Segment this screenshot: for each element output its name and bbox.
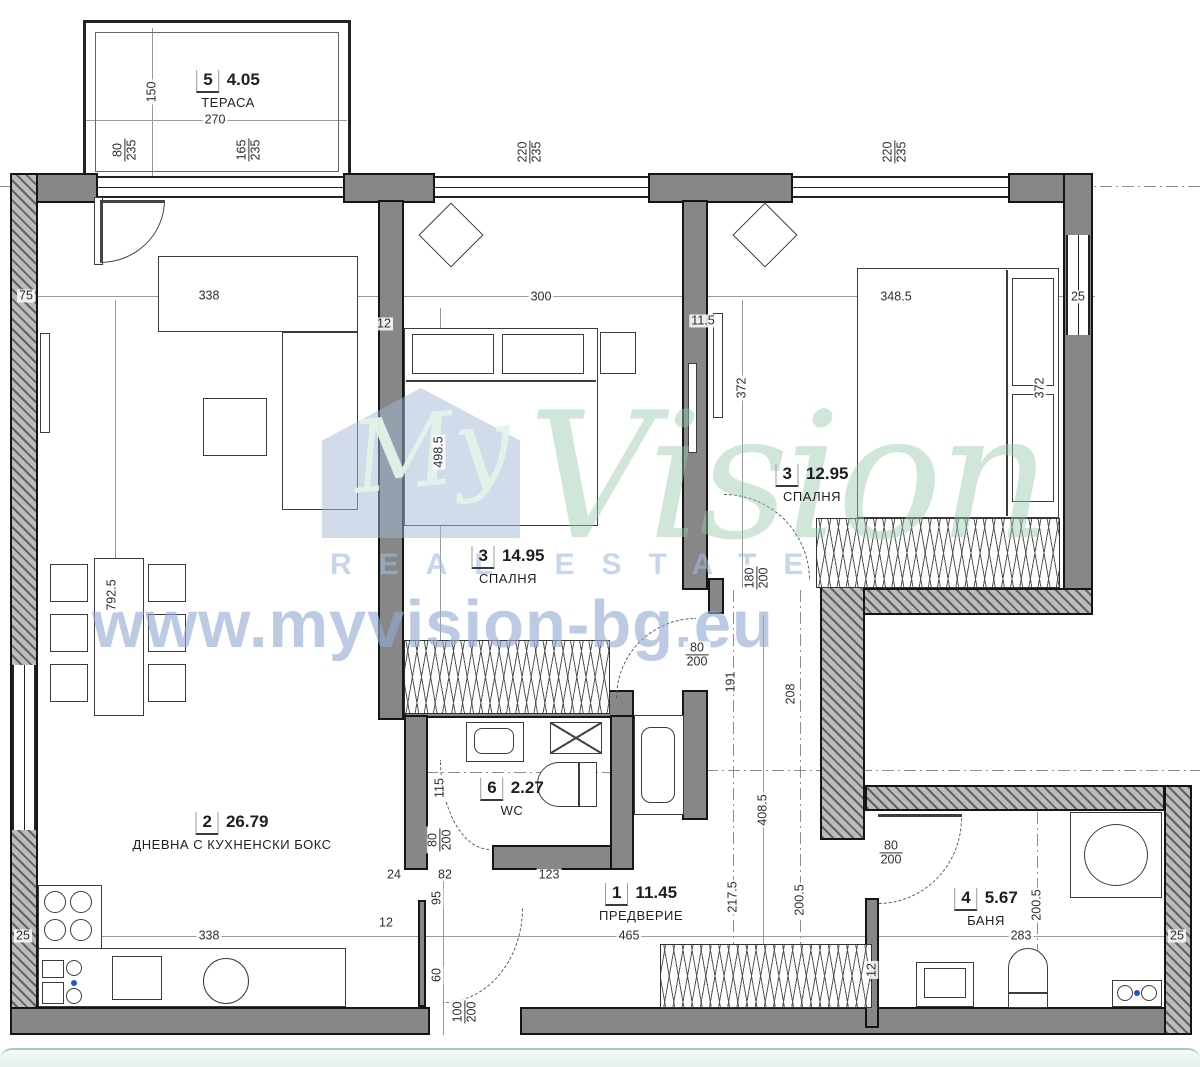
dim-label: 792.5	[105, 577, 118, 612]
kitchen-counter	[38, 948, 346, 1007]
wall-stub-entrance	[418, 900, 426, 1007]
kitchen-cabinet	[42, 960, 64, 978]
dim-label: 165235	[235, 137, 262, 164]
wardrobe	[404, 640, 610, 714]
dim-label: 217.5	[726, 879, 739, 914]
shaft-duct	[641, 727, 675, 803]
window-bed2-right	[1066, 235, 1090, 335]
wall-bottom	[10, 1007, 430, 1035]
dim-label: 372	[735, 376, 748, 401]
dim-label: 24	[385, 868, 403, 881]
chair	[50, 614, 88, 652]
chair	[148, 664, 186, 702]
dim-label: 270	[203, 113, 228, 126]
radiator	[688, 363, 697, 453]
toilet-line	[578, 763, 580, 806]
room-name: WC	[480, 803, 544, 818]
room-number: 6	[480, 778, 503, 801]
dim-label: 338	[197, 929, 222, 942]
dim-label: 220235	[516, 139, 543, 166]
dim-label: 465	[617, 929, 642, 942]
toilet	[1008, 948, 1048, 1008]
dim-label: 348.5	[878, 290, 913, 303]
room-label: 111.45ПРЕДВЕРИЕ	[599, 883, 683, 923]
room-name: БАНЯ	[954, 913, 1018, 928]
dim-label: 220235	[881, 139, 908, 166]
kitchen-hob	[203, 958, 249, 1004]
dim-label: 80200	[426, 827, 453, 854]
chair	[50, 564, 88, 602]
sofa	[158, 256, 358, 332]
pillow	[502, 334, 584, 374]
bed-line	[1006, 270, 1008, 516]
room-area: 5.67	[985, 888, 1018, 907]
dim-label: 12	[865, 961, 878, 979]
valve-icon	[66, 988, 82, 1004]
room-area: 11.45	[635, 883, 677, 902]
dim-label: 283	[1009, 929, 1034, 942]
dim-label: 150	[145, 80, 158, 105]
wardrobe	[660, 944, 872, 1008]
sofa-corner	[282, 332, 358, 510]
dim-label: 80200	[878, 839, 905, 866]
dim-label: 300	[529, 290, 554, 303]
dim-label: 208	[784, 682, 797, 707]
room-label: 54.05ТЕРАСА	[196, 70, 260, 110]
pillow	[1012, 394, 1054, 502]
wall-bath-top-hatched	[865, 785, 1165, 811]
window-bed1	[435, 176, 648, 198]
burner	[44, 919, 66, 941]
bath-basin-round	[1084, 824, 1148, 886]
wall-stub-bed2-door	[708, 578, 724, 614]
nightstand	[600, 332, 636, 374]
room-label: 45.67БАНЯ	[954, 888, 1018, 928]
chair	[50, 664, 88, 702]
room-number: 1	[605, 883, 628, 906]
kitchen-cabinet	[42, 982, 64, 1004]
dim-label: 191	[724, 670, 737, 695]
ac-unit	[418, 202, 483, 267]
wall-corridor-right-hatched	[820, 578, 865, 840]
dim-label: 80200	[684, 641, 711, 668]
ac-unit	[732, 202, 797, 267]
room-area: 4.05	[227, 70, 260, 89]
dim-label: 372	[1033, 376, 1046, 401]
dim-label: 408.5	[756, 792, 769, 827]
water-point	[1134, 990, 1140, 996]
dim-label: 115	[433, 776, 446, 800]
wardrobe	[816, 518, 1060, 588]
wc-basin-bowl	[474, 728, 514, 754]
room-number: 3	[775, 464, 798, 487]
bed-line	[406, 380, 596, 382]
dining-table	[94, 558, 144, 716]
room-name: СПАЛНЯ	[471, 571, 544, 586]
radiator	[713, 313, 723, 418]
wall-bottom	[520, 1007, 1192, 1035]
dim-label: 123	[537, 868, 562, 881]
room-name: СПАЛНЯ	[775, 489, 848, 504]
wall-top	[343, 173, 435, 203]
room-label: 314.95СПАЛНЯ	[471, 546, 544, 586]
burner	[70, 891, 92, 913]
dim-label: 200.5	[793, 882, 806, 917]
room-number: 4	[954, 888, 977, 911]
dim-label: 12	[375, 317, 393, 330]
window-bed2	[793, 176, 1008, 198]
toilet	[537, 762, 597, 807]
partition-bed1-left	[378, 200, 404, 720]
coffee-table	[203, 398, 267, 456]
valve-icon	[1117, 985, 1133, 1001]
dim-label: 95	[430, 889, 443, 907]
valve-icon	[1141, 985, 1157, 1001]
wall-bed2-bottom-hatched	[828, 588, 1093, 615]
bath-vanity-bowl	[924, 968, 966, 998]
pillow	[412, 334, 494, 374]
bottom-green-band	[0, 1048, 1200, 1067]
dim-label: 100200	[451, 999, 478, 1026]
room-area: 26.79	[226, 812, 269, 831]
room-number: 5	[196, 70, 219, 93]
dim-label: 75	[17, 289, 35, 302]
radiator	[40, 333, 50, 433]
water-point	[71, 980, 77, 986]
dim-label: 60	[430, 966, 443, 984]
wc-boiler	[550, 722, 602, 754]
entrance-door-arc	[443, 908, 523, 1003]
dim-label: 80235	[111, 137, 138, 164]
room-label: 312.95СПАЛНЯ	[775, 464, 848, 504]
room-number: 3	[471, 546, 494, 569]
floor-plan: My Vision REAL ESTATE www.myvision-bg.eu…	[0, 0, 1200, 1067]
room-number: 2	[195, 812, 218, 835]
dim-label: 82	[436, 868, 454, 881]
dim-label: 11.5	[689, 314, 716, 327]
partition-wc-right	[610, 715, 634, 870]
room-area: 12.95	[806, 464, 849, 483]
dim-label: 498.5	[432, 434, 445, 469]
room-label: 226.79ДНЕВНА С КУХНЕНСКИ БОКС	[132, 812, 331, 852]
chair	[148, 564, 186, 602]
room-name: ПРЕДВЕРИЕ	[599, 908, 683, 923]
valve-icon	[66, 960, 82, 976]
axis-line	[640, 770, 1200, 771]
room-name: ТЕРАСА	[196, 95, 260, 110]
room-name: ДНЕВНА С КУХНЕНСКИ БОКС	[132, 837, 331, 852]
burner	[70, 919, 92, 941]
room-area: 14.95	[502, 546, 545, 565]
dim-label: 12	[377, 916, 395, 929]
chair	[148, 614, 186, 652]
terrace-window	[98, 176, 343, 198]
dim-label: 25	[1069, 290, 1087, 303]
dim-label: 200.5	[1030, 887, 1043, 922]
bath-door-leaf	[878, 814, 962, 817]
room-label: 62.27WC	[480, 778, 544, 818]
wall-bath-right-hatched	[1164, 785, 1192, 1035]
pillow	[1012, 278, 1054, 386]
kitchen-sink	[112, 956, 162, 1000]
dim-label: 180200	[743, 565, 770, 592]
toilet-line	[1009, 992, 1047, 994]
wall-top	[648, 173, 793, 203]
partition-corridor-left	[682, 690, 708, 820]
dim-label: 25	[1168, 929, 1186, 942]
burner	[44, 891, 66, 913]
dim-label: 338	[197, 289, 222, 302]
window-living-left	[12, 665, 36, 830]
dim-label: 25	[14, 929, 32, 942]
room-area: 2.27	[511, 778, 544, 797]
terrace-door-arc	[100, 200, 165, 263]
